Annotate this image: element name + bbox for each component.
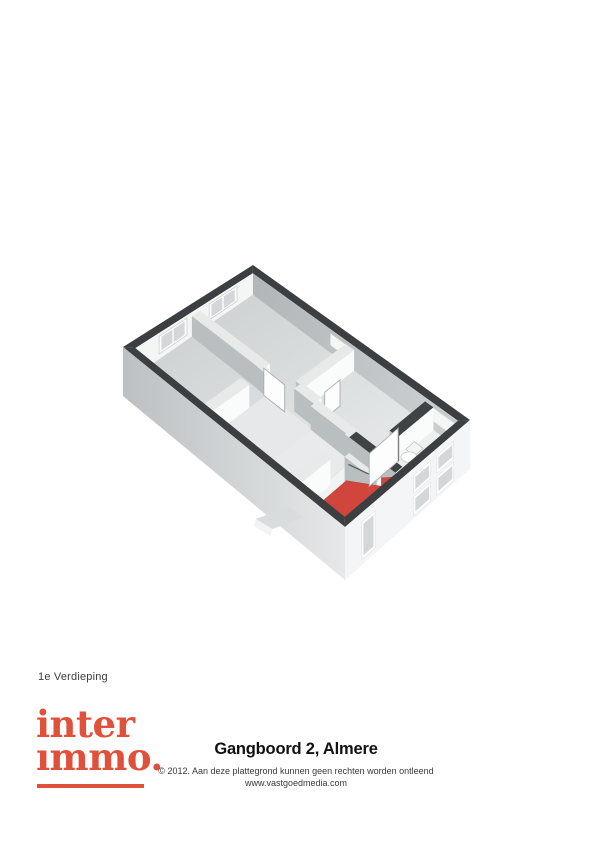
exterior-face-southwest — [123, 347, 345, 580]
page: 1e Verdieping inter ımmo. Gangboord 2, A… — [0, 0, 600, 848]
ext-window-frame-1 — [437, 441, 454, 474]
wall-bathroom-top — [390, 401, 434, 437]
wall-hall-stub-face — [294, 389, 314, 428]
stairs-lower-flight — [361, 477, 392, 488]
toilet-tank — [406, 442, 424, 456]
window-strip-long-wall-1 — [330, 333, 345, 356]
floor-bathroom — [381, 429, 458, 494]
window-glass-2 — [161, 322, 184, 351]
ext-window-glass-4 — [415, 486, 429, 511]
wall-hall-stub-end — [314, 398, 322, 427]
exterior-face-southeast — [345, 420, 470, 580]
ext-window-glass-2 — [438, 466, 452, 491]
wall-roomA-south-face — [304, 350, 354, 410]
wall-bathroom-end — [390, 431, 398, 461]
property-title: Gangboord 2, Almere — [116, 740, 476, 759]
ext-window-glass-3 — [415, 465, 429, 489]
window-frame-1 — [209, 286, 237, 320]
ext-window-frame-3 — [414, 461, 431, 494]
wall-stairhead-face — [353, 438, 357, 466]
ext-window-frame-5 — [362, 511, 375, 560]
ext-window-glass-5 — [363, 515, 373, 555]
wall-landing-west-top — [311, 400, 358, 436]
wall-stair-split-face — [345, 457, 377, 508]
entrance-canopy-side — [254, 519, 273, 536]
exterior-wall-band-end-far — [123, 265, 253, 348]
window-mullion-1 — [222, 297, 223, 310]
wall-bedroom-divider-face — [192, 316, 262, 392]
window-frame-2 — [159, 318, 187, 354]
wall-roomA-south-top — [296, 344, 354, 387]
exterior-wall-band-long-far — [253, 265, 470, 421]
copyright-line: © 2012. Aan deze plattegrond kunnen geen… — [116, 766, 476, 778]
ext-window-frame-4 — [414, 482, 431, 516]
wall-stair-split-top — [345, 453, 382, 482]
stairs-upper-flight — [307, 481, 383, 521]
wall-hall-north-seg1-top — [202, 378, 250, 413]
wall-hall-stub-top — [294, 383, 321, 404]
wall-hall-north-seg1-face — [210, 385, 249, 438]
ext-window-glass-1 — [438, 445, 452, 469]
wall-bathroom-face — [398, 407, 434, 461]
footer: Gangboord 2, Almere © 2012. Aan deze pla… — [116, 740, 476, 789]
ext-window-frame-2 — [437, 462, 454, 496]
website-url: www.vastgoedmedia.com — [116, 778, 476, 790]
window-glass-1 — [211, 289, 234, 316]
wall-landing-west-end — [350, 430, 358, 461]
wall-hall-north-face — [265, 370, 270, 396]
toilet-bowl — [401, 452, 417, 462]
exterior-wall-band-end-near — [345, 420, 470, 527]
stair-railing — [348, 464, 378, 478]
floor-hallway — [210, 394, 312, 475]
wall-stairhead-top — [345, 431, 357, 441]
entrance-canopy-top — [256, 507, 304, 529]
exterior-wall-band-long-near — [123, 347, 345, 527]
wall-hall-north-top — [257, 364, 270, 374]
copyright-note: © 2012. Aan deze plattegrond kunnen geen… — [116, 766, 476, 789]
floor-stair-landing — [296, 461, 363, 518]
wall-bedroom-divider-end — [262, 364, 270, 392]
hall-window-sill — [227, 422, 258, 454]
wall-stairhead-seg1-face — [299, 459, 331, 512]
door-bathroom-open — [369, 428, 398, 486]
wall-stairhead-end — [345, 434, 353, 465]
window-mullion-2 — [172, 329, 173, 343]
wall-stair-split-end — [377, 478, 382, 508]
floor-level-label: 1e Verdieping — [38, 671, 108, 683]
inner-face-long-wall — [253, 273, 458, 448]
wall-stairwell-side-top — [349, 432, 402, 473]
wall-landing-west-face — [311, 406, 351, 461]
window-strip-long-wall-2 — [429, 405, 455, 438]
wall-hall-north-end — [257, 367, 265, 396]
floor-landing — [255, 429, 352, 509]
wall-roomA-south-end — [296, 381, 304, 410]
wall-stairwell-side-face — [349, 437, 395, 498]
floor-base — [135, 295, 458, 551]
wall-stairhead-seg1-top — [290, 453, 330, 485]
door-bedroom2 — [264, 368, 285, 412]
door-room-east — [325, 380, 340, 418]
wall-bedroom-divider-top — [192, 311, 270, 370]
inner-face-end-wall — [135, 273, 252, 375]
